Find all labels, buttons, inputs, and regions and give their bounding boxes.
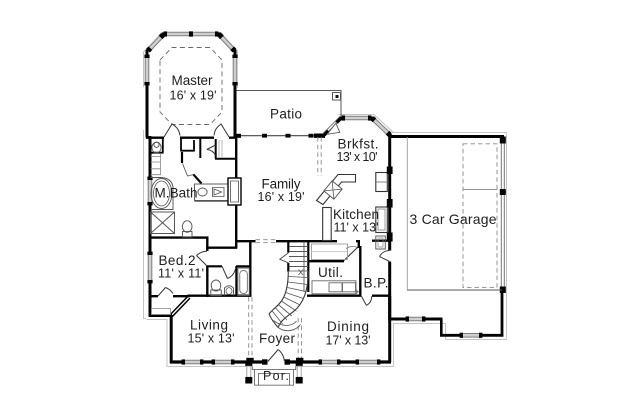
svg-text:11' x 13': 11' x 13' bbox=[334, 221, 379, 235]
svg-text:Master: Master bbox=[172, 73, 214, 88]
svg-text:M.Bath: M.Bath bbox=[155, 186, 198, 201]
svg-text:16' x 19': 16' x 19' bbox=[258, 190, 305, 204]
svg-text:Util.: Util. bbox=[318, 265, 343, 280]
svg-text:3 Car Garage: 3 Car Garage bbox=[410, 211, 497, 227]
svg-text:11' x 11': 11' x 11' bbox=[158, 267, 204, 281]
svg-text:17' x 13': 17' x 13' bbox=[326, 334, 371, 348]
svg-text:16' x 19': 16' x 19' bbox=[170, 89, 217, 103]
svg-text:Foyer: Foyer bbox=[259, 331, 296, 346]
svg-text:Patio: Patio bbox=[270, 107, 302, 122]
svg-text:Dining: Dining bbox=[327, 319, 369, 334]
svg-text:15' x 13': 15' x 13' bbox=[188, 332, 235, 346]
svg-text:Por.: Por. bbox=[263, 369, 289, 383]
svg-text:Living: Living bbox=[190, 318, 228, 333]
svg-text:B.P.: B.P. bbox=[364, 276, 389, 291]
svg-text:13' x 10': 13' x 10' bbox=[337, 150, 378, 164]
